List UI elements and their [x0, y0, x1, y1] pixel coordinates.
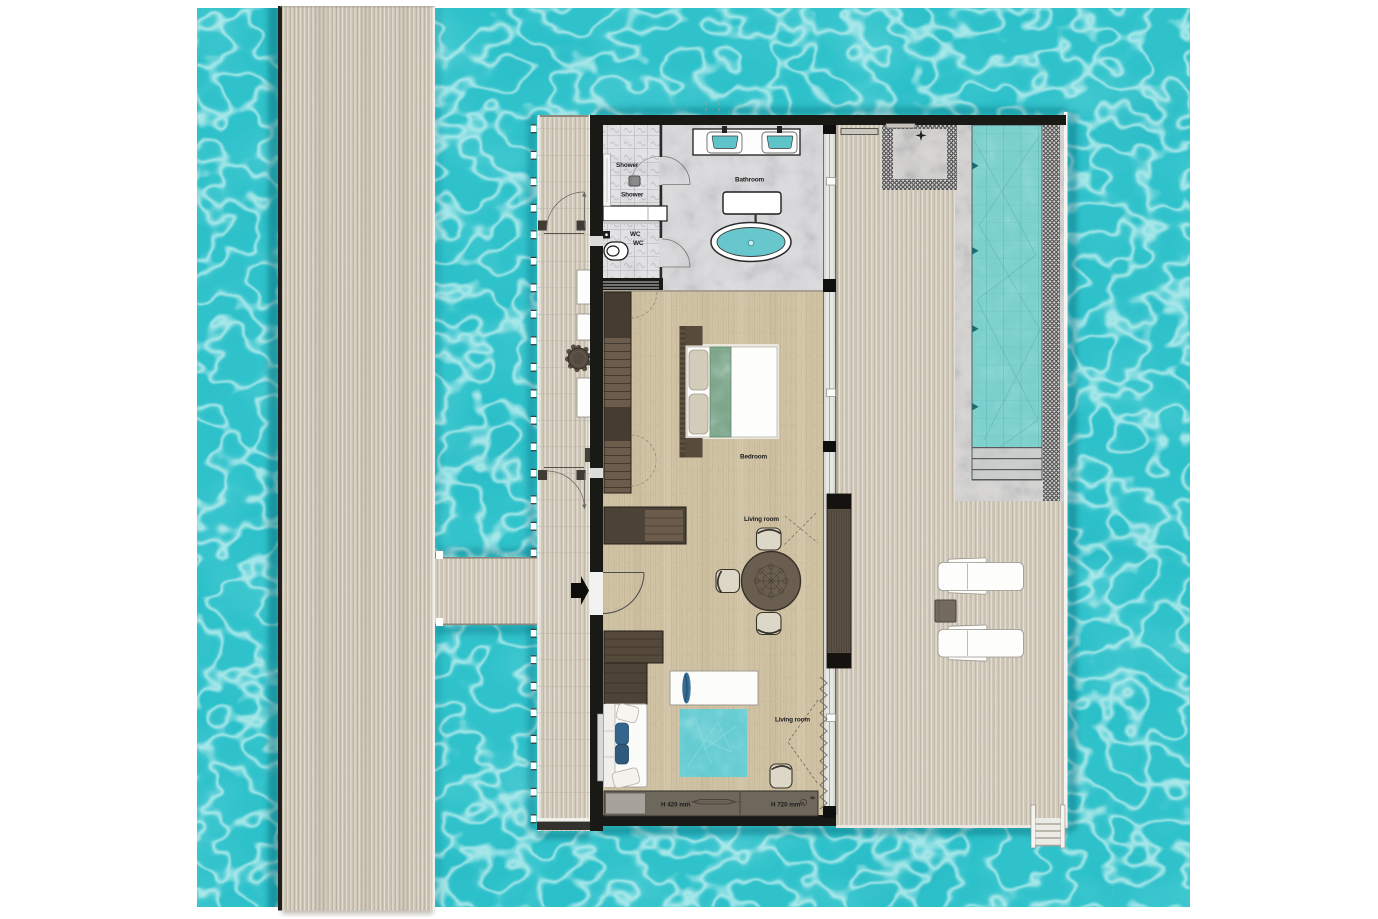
svg-text:Living room: Living room: [744, 516, 779, 523]
svg-text:Shower: Shower: [621, 192, 644, 199]
svg-text:Living room: Living room: [775, 717, 810, 724]
svg-text:H 420 mm: H 420 mm: [661, 802, 691, 809]
svg-text:WC: WC: [630, 231, 641, 238]
svg-text:Shower: Shower: [616, 162, 639, 169]
svg-text:Bathroom: Bathroom: [735, 177, 764, 184]
svg-text:WC: WC: [633, 240, 644, 247]
svg-text:H 720 mm: H 720 mm: [771, 802, 801, 809]
svg-text:Bedroom: Bedroom: [740, 454, 767, 461]
